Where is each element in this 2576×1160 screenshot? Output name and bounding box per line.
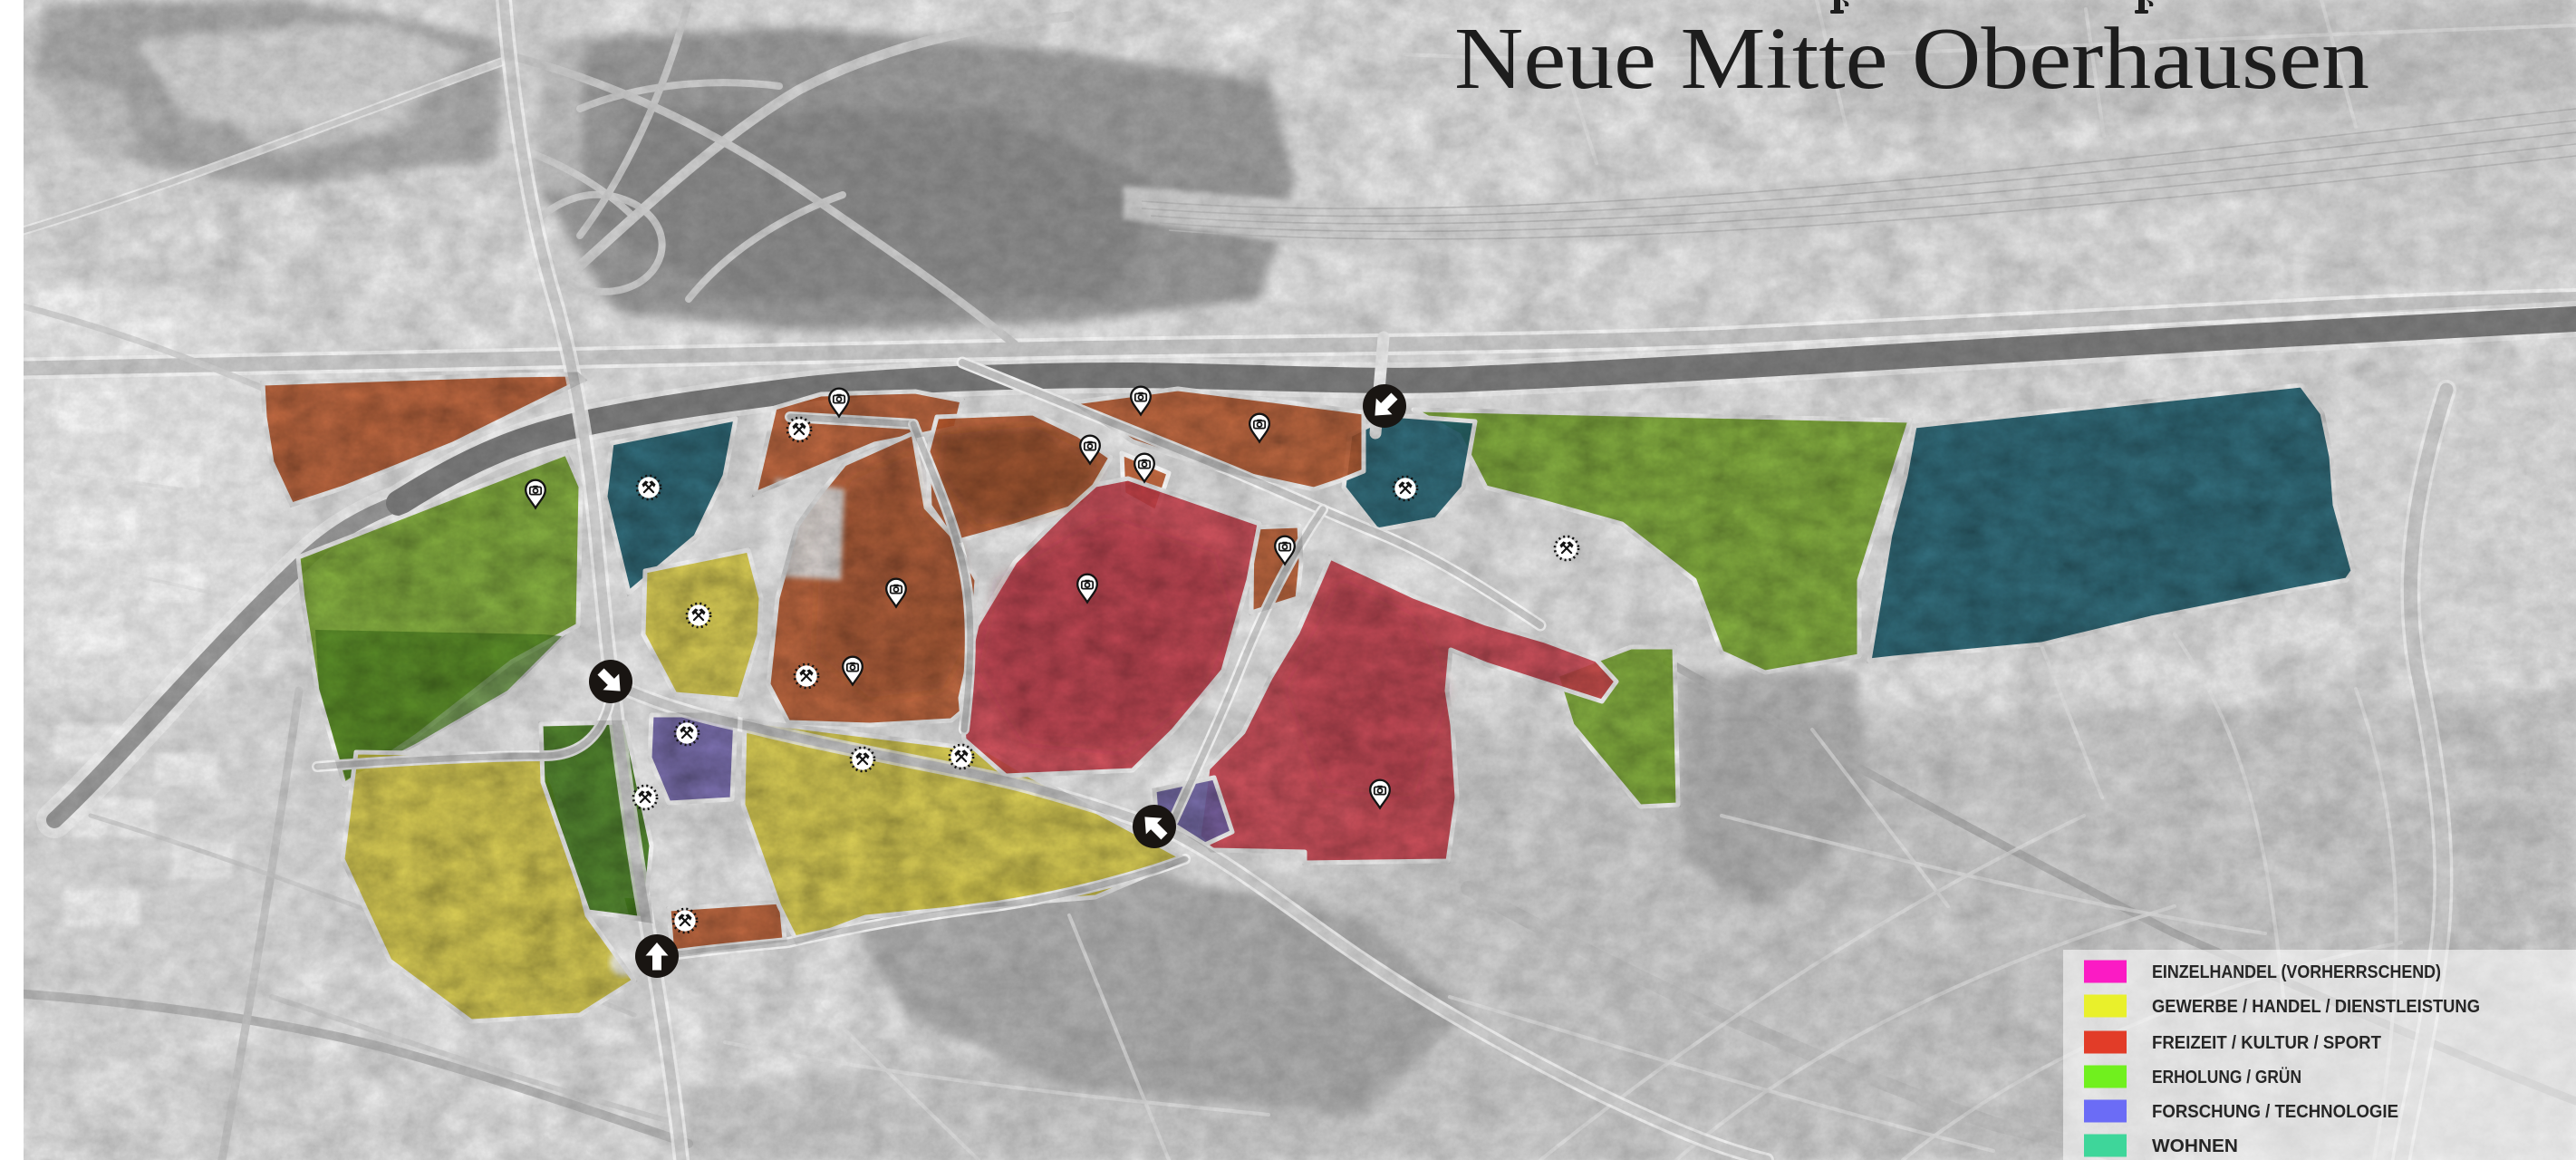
svg-text:EINZELHANDEL (VORHERRSCHEND): EINZELHANDEL (VORHERRSCHEND) [2152, 962, 2441, 982]
svg-text:FORSCHUNG / TECHNOLOGIE: FORSCHUNG / TECHNOLOGIE [2152, 1102, 2398, 1122]
svg-text:FREIZEIT / KULTUR / SPORT: FREIZEIT / KULTUR / SPORT [2152, 1033, 2381, 1053]
svg-text:ERHOLUNG / GRÜN: ERHOLUNG / GRÜN [2152, 1067, 2301, 1087]
svg-text:WOHNEN: WOHNEN [2152, 1136, 2238, 1156]
svg-text:GEWERBE / HANDEL / DIENSTLEIST: GEWERBE / HANDEL / DIENSTLEISTUNG [2152, 997, 2480, 1017]
svg-text:Neue Mitte Oberhausen: Neue Mitte Oberhausen [1454, 10, 2369, 107]
